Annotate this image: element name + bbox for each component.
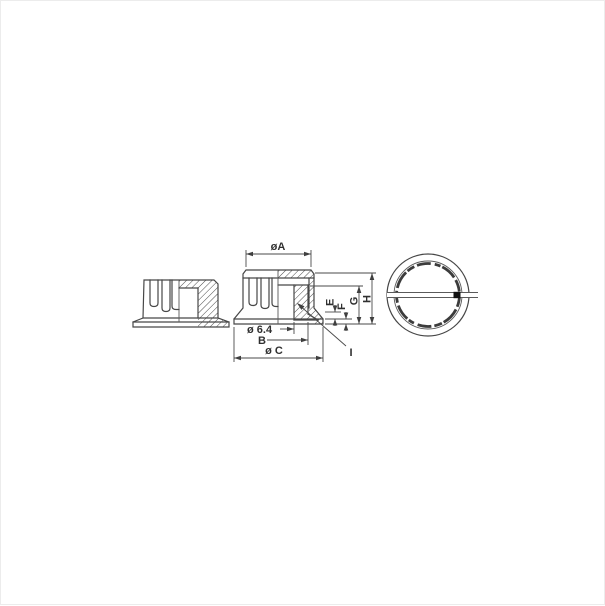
dim-label-skirt-diameter: ø C bbox=[265, 345, 283, 357]
dimension-F: F bbox=[336, 303, 348, 331]
side-section-view bbox=[133, 280, 229, 327]
dim-label-h: H bbox=[362, 295, 374, 303]
dimension-H: H bbox=[362, 273, 375, 324]
dim-label-top-diameter: øA bbox=[271, 241, 286, 253]
dim-label-g: G bbox=[349, 297, 361, 306]
side-view-rib-slot bbox=[150, 280, 158, 307]
drawing-page: øA ø 6.4 B ø C E bbox=[0, 0, 605, 605]
top-view-slot-gap bbox=[387, 293, 479, 297]
side-view-rib-slot bbox=[162, 280, 170, 312]
top-view bbox=[387, 254, 479, 336]
front-view-rib-slot bbox=[272, 278, 278, 307]
front-view-rib-slot bbox=[261, 278, 269, 309]
top-view-index-mark bbox=[454, 292, 461, 298]
dim-label-f: F bbox=[336, 303, 348, 310]
dim-label-e: E bbox=[325, 299, 337, 306]
front-view-cap-hatch bbox=[278, 270, 314, 278]
front-section-view bbox=[234, 270, 323, 324]
dim-label-i: I bbox=[349, 347, 352, 359]
side-view-rib-slot bbox=[172, 280, 179, 310]
technical-drawing: øA ø 6.4 B ø C E bbox=[1, 1, 605, 606]
dimension-oA: øA bbox=[246, 241, 311, 267]
front-view-wall-hatch bbox=[309, 278, 314, 308]
front-view-rib-slot bbox=[249, 278, 257, 306]
dimension-G: G bbox=[349, 286, 362, 324]
